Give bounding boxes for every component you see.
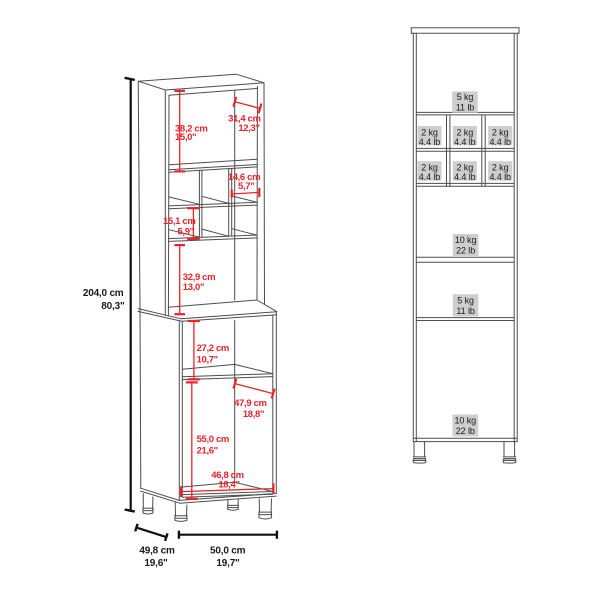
svg-text:49,8 cm: 49,8 cm xyxy=(139,546,175,557)
svg-text:15,1 cm: 15,1 cm xyxy=(163,216,195,227)
svg-text:4.4 lb: 4.4 lb xyxy=(489,172,511,182)
svg-text:5,7": 5,7" xyxy=(238,181,254,192)
svg-text:4.4 lb: 4.4 lb xyxy=(419,172,441,182)
svg-text:50,0 cm: 50,0 cm xyxy=(210,546,246,557)
svg-text:5 kg: 5 kg xyxy=(457,92,474,102)
svg-text:19,7": 19,7" xyxy=(216,558,240,569)
svg-text:5,9": 5,9" xyxy=(178,226,194,237)
svg-text:80,3": 80,3" xyxy=(101,301,125,312)
svg-text:55,0 cm: 55,0 cm xyxy=(197,434,229,445)
svg-text:11 lb: 11 lb xyxy=(456,102,474,112)
svg-text:18,4": 18,4" xyxy=(218,480,239,491)
svg-text:22 lb: 22 lb xyxy=(456,426,475,436)
svg-text:11 lb: 11 lb xyxy=(456,306,474,316)
svg-text:2 kg: 2 kg xyxy=(421,127,438,137)
svg-text:2 kg: 2 kg xyxy=(492,163,509,173)
svg-text:5 kg: 5 kg xyxy=(457,296,474,306)
svg-text:2 kg: 2 kg xyxy=(492,127,509,137)
svg-text:4.4 lb: 4.4 lb xyxy=(419,137,441,147)
svg-text:21,6": 21,6" xyxy=(197,446,218,457)
svg-text:22 lb: 22 lb xyxy=(456,246,475,256)
svg-text:2 kg: 2 kg xyxy=(421,163,438,173)
svg-text:2 kg: 2 kg xyxy=(456,127,473,137)
svg-text:47,9 cm: 47,9 cm xyxy=(234,398,266,409)
svg-text:204,0 cm: 204,0 cm xyxy=(83,288,124,299)
svg-text:12,3": 12,3" xyxy=(238,123,259,134)
svg-text:27,2 cm: 27,2 cm xyxy=(197,343,229,354)
svg-text:2 kg: 2 kg xyxy=(456,163,473,173)
svg-text:19,6": 19,6" xyxy=(144,558,168,569)
svg-text:10 kg: 10 kg xyxy=(455,416,477,426)
svg-text:4.4 lb: 4.4 lb xyxy=(454,137,476,147)
svg-text:18,8": 18,8" xyxy=(243,409,264,420)
svg-text:15,0": 15,0" xyxy=(175,132,196,143)
svg-text:4.4 lb: 4.4 lb xyxy=(489,137,511,147)
svg-text:13,0": 13,0" xyxy=(183,282,204,293)
svg-text:10,7": 10,7" xyxy=(197,354,218,365)
svg-text:10 kg: 10 kg xyxy=(455,235,477,245)
svg-text:4.4 lb: 4.4 lb xyxy=(454,172,476,182)
